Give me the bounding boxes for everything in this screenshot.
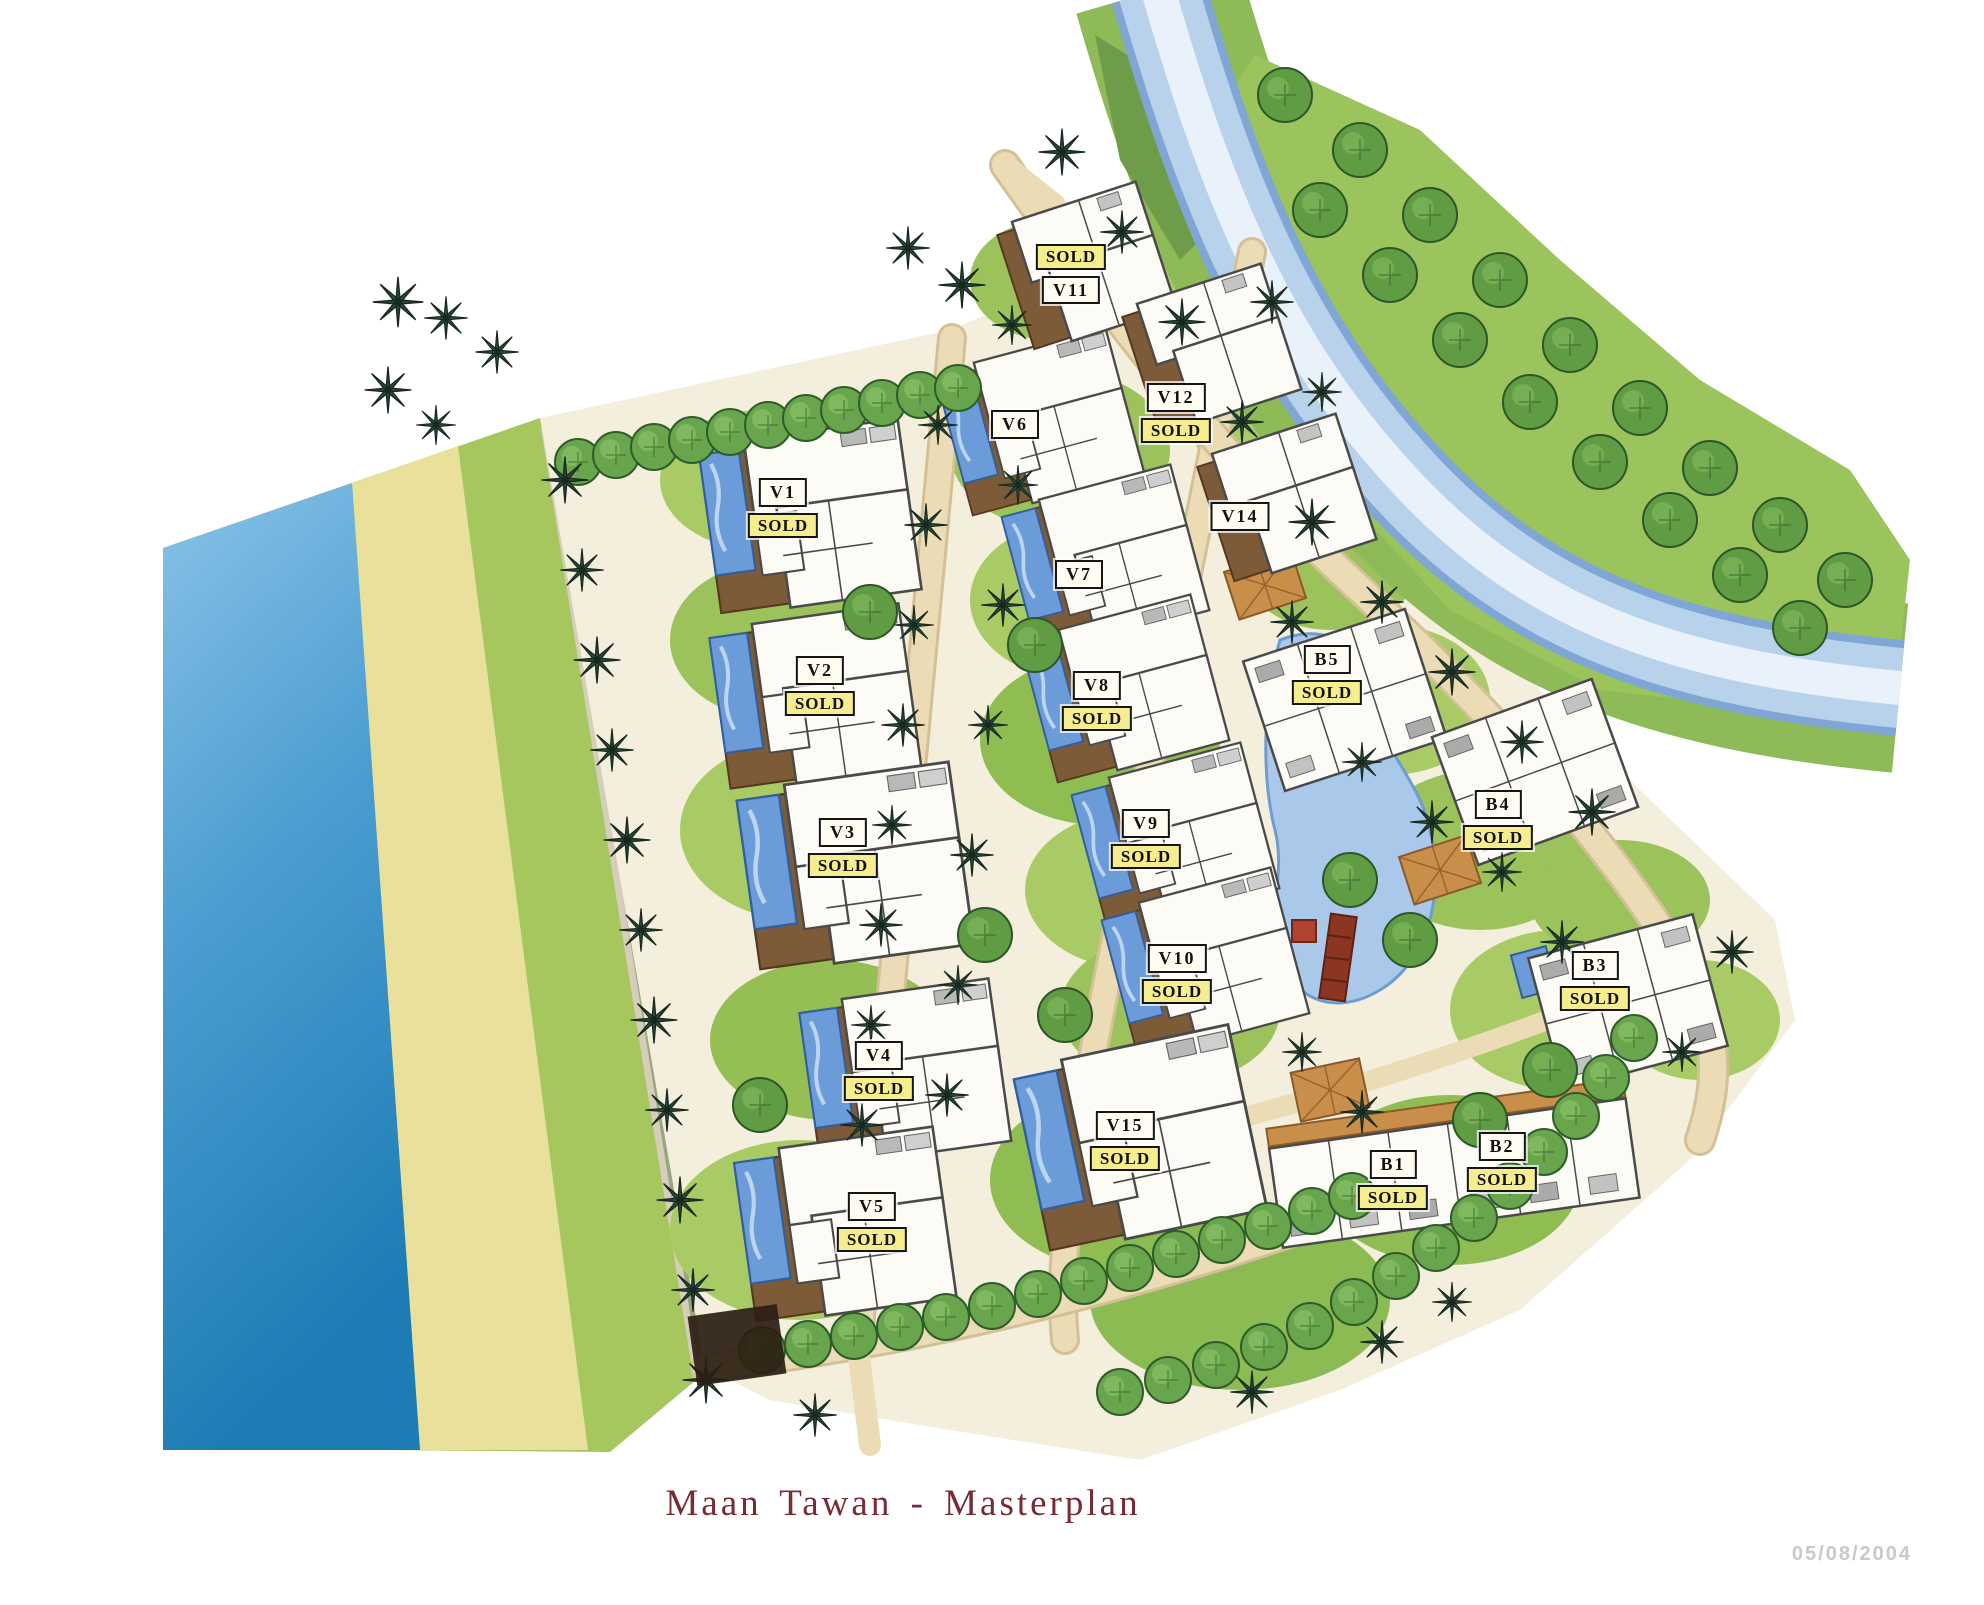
plot-id-tag: V3 <box>819 818 867 847</box>
plot-id-tag: V9 <box>1122 809 1170 838</box>
sold-badge: SOLD <box>1036 244 1106 270</box>
plot-label-V15: V15SOLD <box>1090 1111 1160 1171</box>
plot-label-V2: V2SOLD <box>785 656 855 716</box>
plot-label-V9: V9SOLD <box>1111 809 1181 869</box>
plot-id-tag: V14 <box>1211 502 1270 531</box>
sold-badge: SOLD <box>808 853 878 879</box>
sold-badge: SOLD <box>1111 844 1181 870</box>
plot-label-V6: V6 <box>991 410 1039 439</box>
plot-label-V8: V8SOLD <box>1062 671 1132 731</box>
plot-label-B3: B3SOLD <box>1560 951 1630 1011</box>
plot-id-tag: V4 <box>855 1041 903 1070</box>
sold-badge: SOLD <box>1358 1185 1428 1211</box>
plot-id-tag: B2 <box>1478 1132 1525 1161</box>
plot-label-V4: V4SOLD <box>844 1041 914 1101</box>
plot-label-B5: B5SOLD <box>1292 645 1362 705</box>
sold-badge: SOLD <box>1062 706 1132 732</box>
sold-badge: SOLD <box>1463 825 1533 851</box>
plot-id-tag: V10 <box>1147 944 1206 973</box>
plot-id-tag: B1 <box>1369 1150 1416 1179</box>
sold-badge: SOLD <box>1141 418 1211 444</box>
plot-id-tag: V8 <box>1073 671 1121 700</box>
plot-label-V1: V1SOLD <box>748 478 818 538</box>
plot-id-tag: V7 <box>1055 560 1103 589</box>
plot-id-tag: B4 <box>1474 790 1521 819</box>
plot-label-V7: V7 <box>1055 560 1103 589</box>
sold-badge: SOLD <box>1142 979 1212 1005</box>
masterplan-canvas: V1SOLDV2SOLDV3SOLDV4SOLDV5SOLDV6V7V8SOLD… <box>0 0 1984 1605</box>
plot-label-B4: B4SOLD <box>1463 790 1533 850</box>
plot-label-V3: V3SOLD <box>808 818 878 878</box>
plot-label-B1: B1SOLD <box>1358 1150 1428 1210</box>
sold-badge: SOLD <box>748 513 818 539</box>
plot-label-V10: V10SOLD <box>1142 944 1212 1004</box>
sold-badge: SOLD <box>837 1227 907 1253</box>
plot-labels-layer: V1SOLDV2SOLDV3SOLDV4SOLDV5SOLDV6V7V8SOLD… <box>0 0 1984 1605</box>
plot-label-V11: SOLDV11 <box>1036 244 1106 304</box>
sold-badge: SOLD <box>1467 1167 1537 1193</box>
plot-label-V5: V5SOLD <box>837 1192 907 1252</box>
plot-id-tag: V6 <box>991 410 1039 439</box>
sold-badge: SOLD <box>1292 680 1362 706</box>
plot-id-tag: B3 <box>1571 951 1618 980</box>
plan-title: Maan Tawan - Masterplan <box>665 1482 1140 1525</box>
plot-id-tag: V12 <box>1146 383 1205 412</box>
sold-badge: SOLD <box>844 1076 914 1102</box>
plot-id-tag: V15 <box>1095 1111 1154 1140</box>
plot-id-tag: V11 <box>1042 276 1100 305</box>
plot-label-B2: B2SOLD <box>1467 1132 1537 1192</box>
sold-badge: SOLD <box>785 691 855 717</box>
plot-id-tag: B5 <box>1303 645 1350 674</box>
plot-label-V12: V12SOLD <box>1141 383 1211 443</box>
plot-id-tag: V2 <box>796 656 844 685</box>
plot-id-tag: V1 <box>759 478 807 507</box>
sold-badge: SOLD <box>1090 1146 1160 1172</box>
plot-label-V14: V14 <box>1211 502 1270 531</box>
plot-id-tag: V5 <box>848 1192 896 1221</box>
sold-badge: SOLD <box>1560 986 1630 1012</box>
date-stamp: 05/08/2004 <box>1792 1543 1912 1566</box>
